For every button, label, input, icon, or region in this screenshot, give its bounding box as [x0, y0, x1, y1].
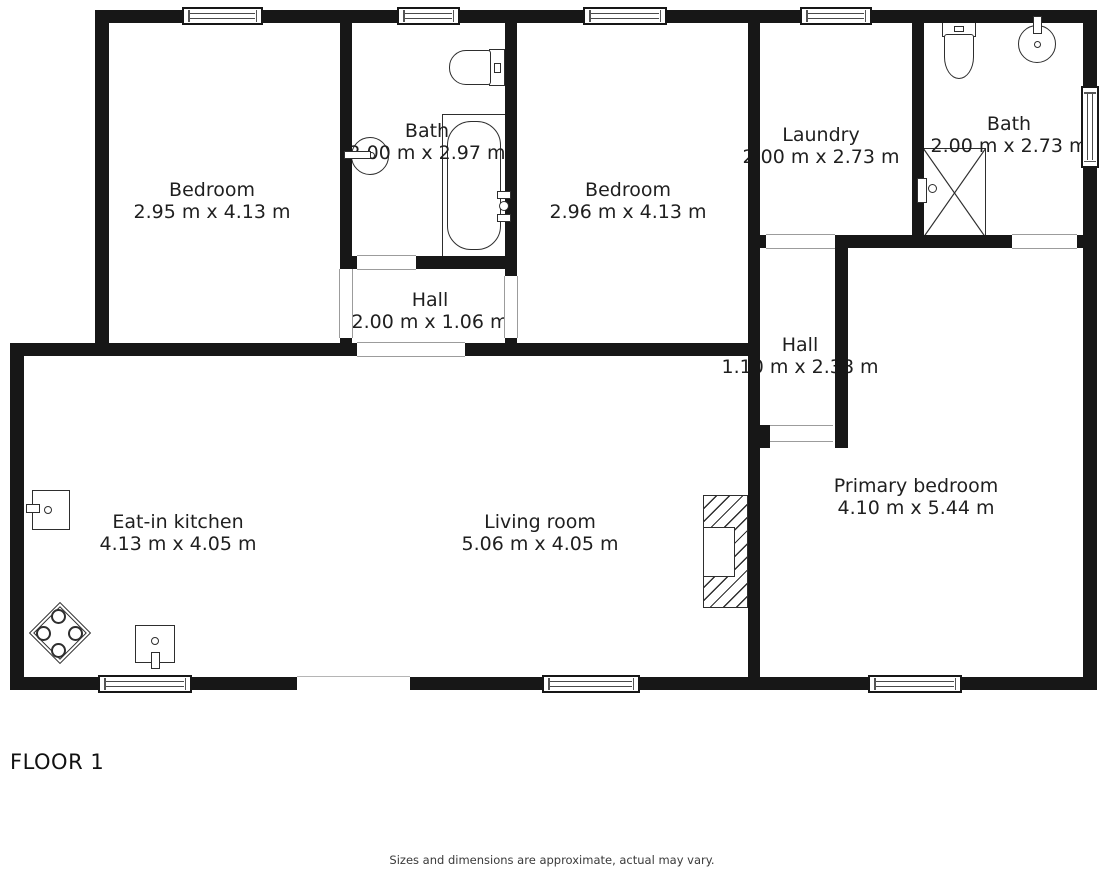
window [98, 675, 192, 693]
room-name: Primary bedroom [834, 475, 998, 497]
room-label-primary-bedroom: Primary bedroom 4.10 m x 5.44 m [834, 475, 998, 519]
window-pane [876, 681, 954, 687]
stove-burner-icon [51, 609, 66, 624]
fireplace-firebox-icon [703, 527, 735, 577]
door-opening-hall2-primary [770, 425, 833, 442]
window-pane [550, 681, 632, 687]
faucet-icon [499, 201, 509, 211]
dishwasher-handle-icon [26, 504, 40, 513]
room-name: Bath [348, 120, 505, 142]
window-pane [106, 681, 184, 687]
room-label-bath-2: Bath 2.00 m x 2.73 m [930, 113, 1087, 157]
shower-valve-icon [917, 178, 927, 203]
wall-exterior-left-lower [10, 343, 24, 690]
room-dims: 5.06 m x 4.05 m [461, 533, 618, 555]
wall-bath1-bottom [340, 256, 357, 269]
wall-mid-horizontal [465, 343, 760, 356]
faucet-icon [344, 151, 371, 159]
window-pane [1087, 94, 1093, 160]
room-name: Laundry [742, 124, 899, 146]
toilet-icon [944, 34, 974, 79]
wall-bath1-bottom [416, 256, 517, 269]
floor-title: FLOOR 1 [10, 750, 104, 774]
room-label-hall-1: Hall 2.00 m x 1.06 m [351, 289, 508, 333]
room-name: Eat-in kitchen [99, 511, 256, 533]
window-pane [190, 13, 255, 19]
wall-stub [758, 235, 766, 248]
window-cap [453, 10, 455, 22]
wall-central-vertical [748, 23, 760, 690]
shower-valve-icon [928, 184, 937, 193]
room-name: Bedroom [549, 179, 706, 201]
faucet-icon [497, 191, 511, 199]
room-label-kitchen: Eat-in kitchen 4.13 m x 4.05 m [99, 511, 256, 555]
room-dims: 2.00 m x 2.73 m [742, 146, 899, 168]
window [800, 7, 872, 25]
window-pane [591, 13, 659, 19]
door-opening-bath1 [357, 255, 416, 270]
window [542, 675, 640, 693]
door-opening-hall1-living [357, 342, 465, 357]
toilet-flush-icon [954, 26, 964, 32]
room-dims: 4.13 m x 4.05 m [99, 533, 256, 555]
wall-exterior-bottom [410, 677, 542, 690]
wall-upper-right-bottom [835, 235, 1012, 248]
room-dims: 2.00 m x 1.06 m [351, 311, 508, 333]
room-dims: 2.00 m x 2.97 m [348, 142, 505, 164]
door-opening-bedroom2 [504, 276, 518, 338]
toilet-icon [449, 50, 491, 85]
toilet-flush-icon [494, 63, 501, 73]
room-name: Living room [461, 511, 618, 533]
window-cap [1084, 92, 1096, 94]
room-dims: 2.95 m x 4.13 m [133, 201, 290, 223]
oven-knob-icon [151, 637, 159, 645]
room-dims: 2.96 m x 4.13 m [549, 201, 706, 223]
wall-exterior-left-upper [95, 10, 109, 356]
shower-icon [923, 148, 986, 238]
room-name: Bath [930, 113, 1087, 135]
stove-burner-icon [36, 626, 51, 641]
wall-stub [1077, 235, 1083, 248]
window-cap [865, 10, 867, 22]
wall-exterior-bottom [962, 677, 1097, 690]
window [397, 7, 460, 25]
window-cap [660, 10, 662, 22]
door-opening-bath2 [1012, 234, 1077, 249]
window [182, 7, 263, 25]
room-label-bath-1: Bath 2.00 m x 2.97 m [348, 120, 505, 164]
window-cap [188, 10, 190, 22]
stove-burner-icon [68, 626, 83, 641]
room-dims: 4.10 m x 5.44 m [834, 497, 998, 519]
window-cap [185, 678, 187, 690]
oven-handle-icon [151, 652, 160, 669]
stove-burner-icon [51, 643, 66, 658]
window-cap [633, 678, 635, 690]
room-label-bedroom-1: Bedroom 2.95 m x 4.13 m [133, 179, 290, 223]
window-cap [874, 678, 876, 690]
room-dims: 1.10 m x 2.38 m [721, 356, 878, 378]
window-cap [806, 10, 808, 22]
wall-hall2-right [835, 241, 848, 448]
window-cap [403, 10, 405, 22]
fireplace-icon [703, 495, 748, 608]
room-name: Bedroom [133, 179, 290, 201]
window-pane [405, 13, 452, 19]
wall-laundry-bath2 [912, 23, 924, 241]
door-opening-exterior [297, 676, 410, 690]
room-label-hall-2: Hall 1.10 m x 2.38 m [721, 334, 878, 378]
dishwasher-knob-icon [44, 506, 52, 514]
window-cap [548, 678, 550, 690]
wall-bath1-bedroom2 [505, 23, 517, 276]
window-pane [808, 13, 864, 19]
window [1081, 86, 1099, 168]
window-cap [589, 10, 591, 22]
door-opening-laundry [766, 234, 835, 249]
room-dims: 2.00 m x 2.73 m [930, 135, 1087, 157]
faucet-icon [497, 214, 511, 222]
room-label-bedroom-2: Bedroom 2.96 m x 4.13 m [549, 179, 706, 223]
wall-mid-horizontal [24, 343, 357, 356]
door-opening-bedroom1 [339, 269, 353, 338]
window-cap [955, 678, 957, 690]
wall-stub [758, 425, 770, 448]
wall-bedroom1-bath1 [340, 23, 352, 269]
faucet-icon [1033, 16, 1042, 34]
window-cap [104, 678, 106, 690]
window [868, 675, 962, 693]
faucet-icon [1034, 41, 1041, 48]
room-label-laundry: Laundry 2.00 m x 2.73 m [742, 124, 899, 168]
room-label-living-room: Living room 5.06 m x 4.05 m [461, 511, 618, 555]
wall-exterior-bottom [192, 677, 297, 690]
disclaimer-text: Sizes and dimensions are approximate, ac… [389, 853, 714, 867]
floor-plan: Bedroom 2.95 m x 4.13 m Bath 2.00 m x 2.… [0, 0, 1104, 875]
window [583, 7, 667, 25]
window-cap [256, 10, 258, 22]
window-cap [1084, 161, 1096, 163]
wall-exterior-bottom [10, 677, 98, 690]
room-name: Hall [351, 289, 508, 311]
